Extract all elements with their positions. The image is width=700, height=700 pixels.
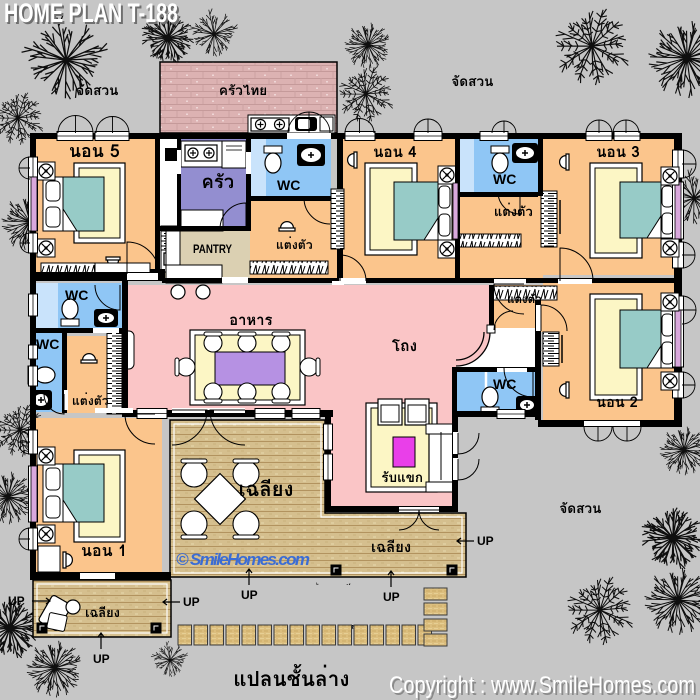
svg-text:UP: UP <box>8 594 25 608</box>
svg-text:© SmileHomes.com: © SmileHomes.com <box>176 550 310 569</box>
svg-text:HOME PLAN T-188: HOME PLAN T-188 <box>4 0 178 28</box>
svg-text:UP: UP <box>183 595 200 609</box>
svg-text:PANTRY: PANTRY <box>193 242 232 256</box>
svg-text:WC: WC <box>493 171 516 187</box>
svg-text:WC: WC <box>65 287 88 303</box>
svg-text:UP: UP <box>477 534 494 548</box>
svg-text:UP: UP <box>383 590 400 604</box>
svg-text:WC: WC <box>277 177 300 193</box>
svg-text:WC: WC <box>493 376 516 392</box>
svg-text:UP: UP <box>241 588 258 602</box>
svg-text:UP: UP <box>93 652 110 666</box>
svg-text:WC: WC <box>36 336 59 352</box>
svg-text:Copyright : www.SmileHomes.com: Copyright : www.SmileHomes.com <box>389 672 695 699</box>
